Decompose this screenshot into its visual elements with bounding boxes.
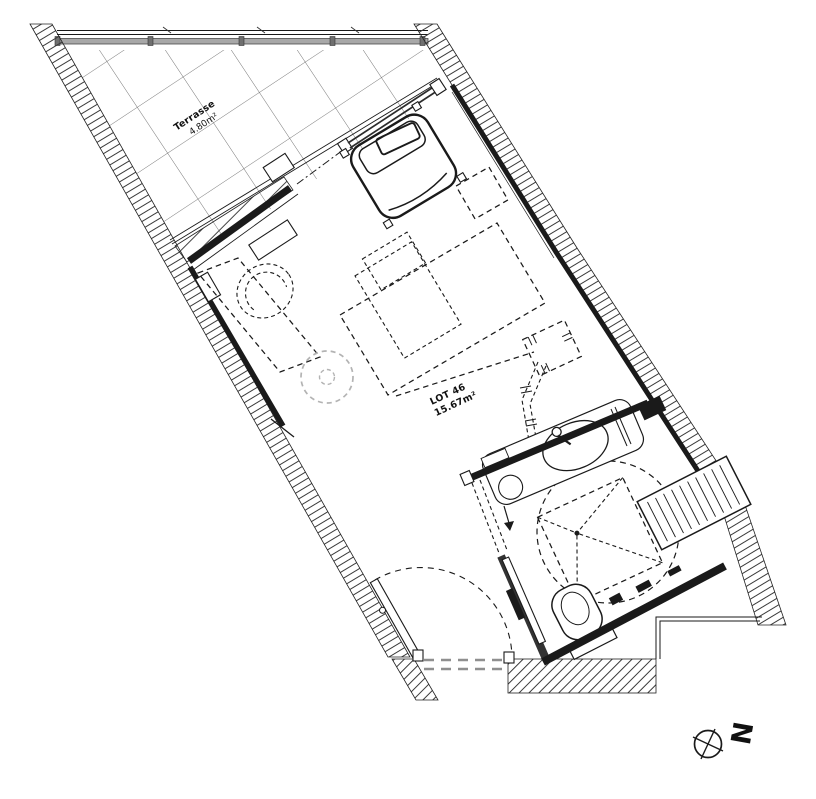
exterior-wall-bottom bbox=[508, 659, 656, 693]
north-label: N bbox=[723, 719, 757, 747]
exterior-wall-bottom-left-wedge bbox=[392, 659, 438, 700]
compass-cross-icon bbox=[693, 729, 723, 759]
pedestal-table bbox=[301, 351, 353, 403]
bathroom bbox=[460, 396, 751, 662]
lot-label-group: LOT 46 15.67m² bbox=[428, 379, 479, 419]
bed-duvet bbox=[355, 242, 461, 358]
desk-chair bbox=[226, 253, 303, 329]
bed bbox=[340, 223, 545, 395]
grab-bars bbox=[609, 565, 682, 605]
utility-box bbox=[523, 320, 582, 376]
entry-threshold bbox=[424, 660, 506, 669]
floor-plan-page: Terrasse 4.80m² bbox=[0, 0, 816, 799]
entry-jamb-left bbox=[413, 650, 423, 661]
railing-joint-ticks bbox=[163, 27, 359, 33]
floor-plan-drawing: Terrasse 4.80m² bbox=[0, 0, 816, 799]
radiator-under-window bbox=[249, 220, 297, 260]
entry-jamb-right bbox=[504, 652, 514, 663]
building-step-outline bbox=[656, 617, 762, 659]
bed-pillow bbox=[362, 232, 425, 290]
entry-direction-arrow bbox=[504, 506, 514, 531]
balcony-railing bbox=[55, 27, 428, 46]
north-indicator: N bbox=[693, 719, 758, 759]
left-wall-window bbox=[190, 267, 294, 437]
